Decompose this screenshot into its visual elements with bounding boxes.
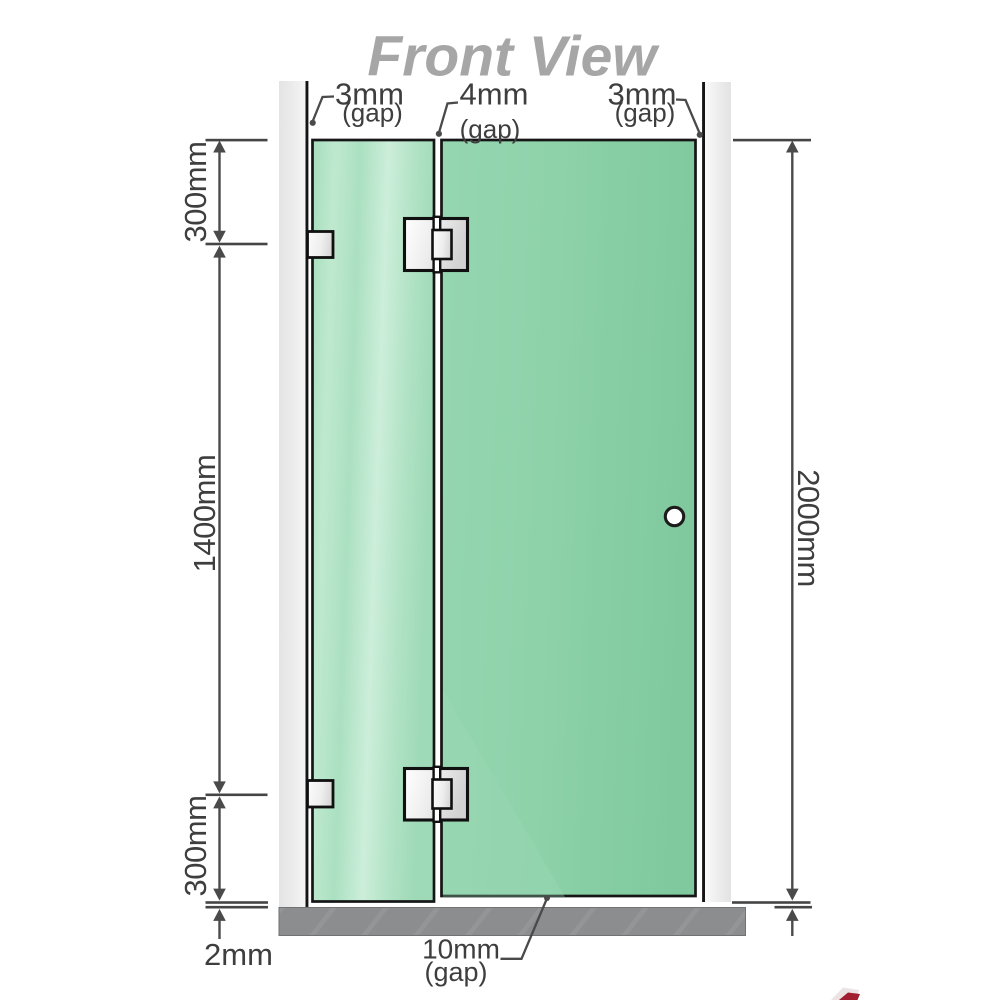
svg-text:(gap): (gap) bbox=[615, 98, 676, 128]
svg-text:4mm: 4mm bbox=[460, 77, 529, 112]
svg-text:2000mm: 2000mm bbox=[791, 469, 826, 587]
svg-text:1400mm: 1400mm bbox=[187, 455, 222, 573]
svg-text:300mm: 300mm bbox=[178, 796, 213, 897]
svg-text:2mm: 2mm bbox=[204, 937, 273, 972]
svg-text:(gap): (gap) bbox=[460, 114, 521, 144]
svg-text:300mm: 300mm bbox=[178, 142, 213, 243]
svg-text:(gap): (gap) bbox=[424, 957, 487, 987]
svg-text:(gap): (gap) bbox=[342, 98, 403, 128]
